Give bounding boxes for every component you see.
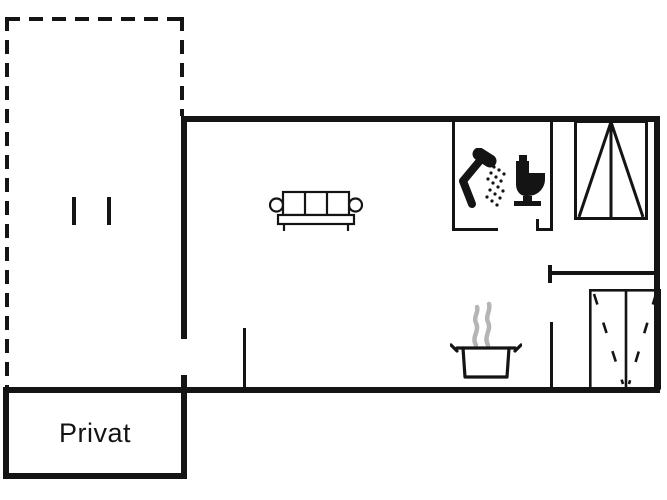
private-room-label: Privat bbox=[59, 418, 131, 449]
toilet-icon bbox=[500, 152, 546, 210]
bathroom-wall-right bbox=[550, 122, 553, 231]
wardrobe-top-icon bbox=[574, 120, 648, 220]
floorplan-canvas: Privat bbox=[0, 0, 667, 500]
private-room: Privat bbox=[3, 387, 187, 479]
bedroom-wall-top bbox=[549, 271, 654, 275]
bedroom-wall-end-cap bbox=[548, 265, 552, 283]
terrace-dashed-wall-left bbox=[5, 17, 9, 390]
terrace-dashed-wall-right bbox=[180, 17, 184, 116]
terrace-door-mark-left bbox=[72, 197, 76, 225]
partition-wall-stub bbox=[243, 328, 246, 387]
steam-icon bbox=[474, 304, 489, 345]
wall-left-upper bbox=[181, 116, 187, 339]
wardrobe-bottom-icon bbox=[589, 289, 661, 390]
sofa-icon bbox=[268, 188, 364, 232]
terrace-door-mark-right bbox=[107, 197, 111, 225]
bathroom-wall-bottom-left bbox=[452, 228, 498, 231]
cooking-pot-icon bbox=[450, 300, 522, 384]
bedroom-wall-left bbox=[550, 322, 553, 387]
terrace-dashed-wall-top bbox=[6, 17, 183, 21]
bathroom-door-jamb bbox=[536, 219, 539, 231]
